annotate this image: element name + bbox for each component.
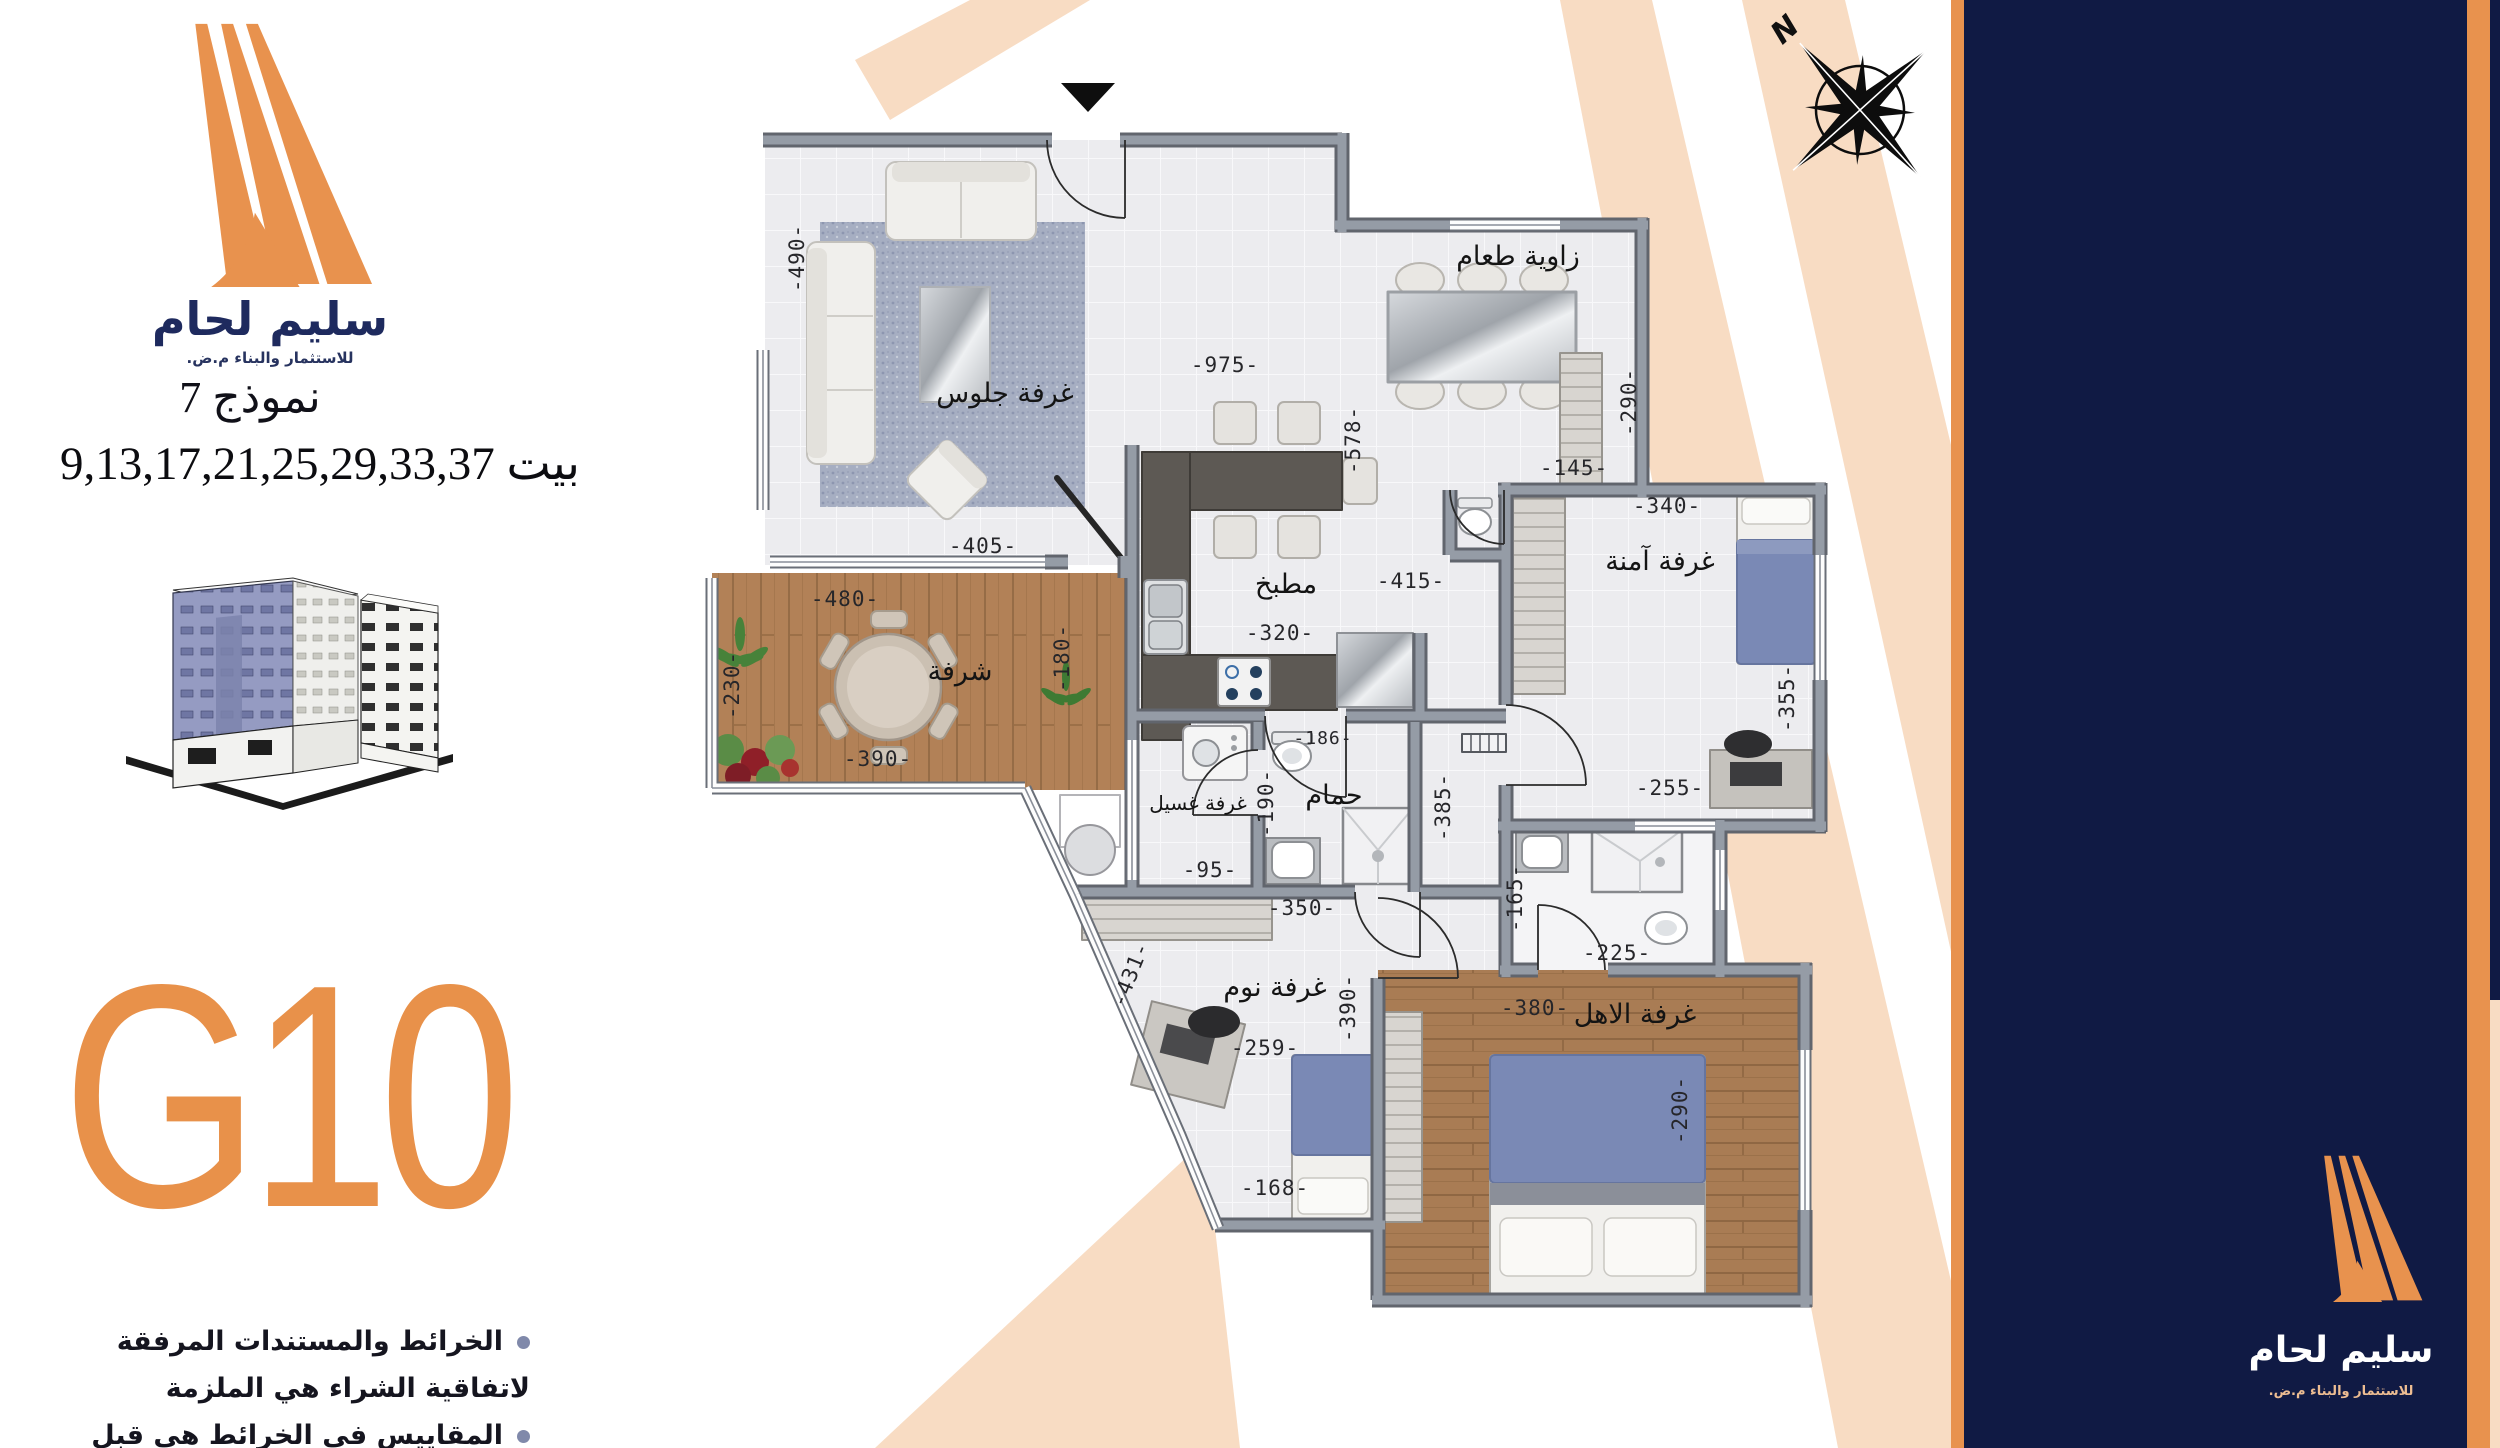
dim: -480-: [811, 587, 879, 611]
safe-bed: [1737, 494, 1815, 664]
dim: -320-: [1246, 621, 1314, 645]
dim: -290-: [1668, 1076, 1692, 1144]
dim: -165-: [1503, 864, 1527, 932]
room-label-safe: غرفة آمنة: [1605, 545, 1715, 577]
compass-north-label: N: [1765, 9, 1806, 52]
brand-name: سليم لحام: [105, 292, 435, 346]
dining-set: [1388, 263, 1576, 409]
dim: -385-: [1431, 773, 1455, 841]
terrace-column: [1060, 795, 1120, 875]
family-wardrobe: [1382, 1012, 1422, 1222]
note-text: الخرائط والمستندات المرفقة لاتفاقية الشر…: [117, 1326, 530, 1404]
building-render: [118, 558, 453, 813]
dim: -578-: [1341, 406, 1365, 474]
note-item: المقاييس في الخرائط هي قبل مرحلة القصارة: [60, 1412, 530, 1448]
dim: -145-: [1540, 456, 1608, 480]
dim: -350-: [1268, 896, 1336, 920]
dim: -168-: [1241, 1176, 1309, 1200]
bath2-shower: [1592, 830, 1682, 892]
radiator: [1462, 734, 1506, 752]
entrance-arrow-icon: [1061, 83, 1115, 112]
room-label-kitchen: مطبخ: [1255, 569, 1317, 600]
dim: -230-: [720, 651, 744, 719]
dim: -340-: [1633, 494, 1701, 518]
dim: -390-: [844, 747, 912, 771]
note-item: الخرائط والمستندات المرفقة لاتفاقية الشر…: [60, 1318, 530, 1412]
panel-brand-tagline: للاستثمار والبناء م.ض.: [2191, 1384, 2491, 1399]
bath-sink: [1266, 838, 1320, 884]
room-label-balcony: شرفة: [928, 656, 993, 687]
room-label-dining: زاوية طعام: [1456, 241, 1580, 272]
room-label-living: غرفة جلوس: [936, 378, 1074, 409]
dim: -355-: [1775, 664, 1799, 732]
dim: -180-: [1050, 624, 1074, 692]
panel-orange-stripe: [1951, 0, 1964, 1448]
floorplan: غرفة جلوس زاوية طعام مطبخ شرفة غرفة غسيل…: [620, 50, 1920, 1320]
bath2-toilet: [1645, 912, 1687, 944]
note-text: المقاييس في الخرائط هي قبل مرحلة القصارة: [91, 1420, 530, 1448]
dim: -975-: [1191, 353, 1259, 377]
shower: [1343, 808, 1413, 884]
bedroom-closet: [1082, 898, 1272, 940]
dim: -380-: [1501, 996, 1569, 1020]
stove: [1218, 658, 1270, 706]
room-label-family: غرفة الاهل: [1574, 999, 1697, 1030]
panel-peach-corner: [2490, 1000, 2500, 1448]
room-label-bedroom: غرفة نوم: [1223, 972, 1326, 1003]
kitchen-sink: [1144, 580, 1187, 654]
sofa-three-seat: [807, 242, 875, 464]
dim: -190-: [1254, 769, 1278, 837]
poster-page: سليم لحام للاستثمار والبناء م.ض. نموذج 7…: [0, 0, 2500, 1448]
wc-toilet: [1458, 498, 1492, 535]
dim: -290-: [1617, 368, 1641, 436]
side-panel: سليم لحام للاستثمار والبناء م.ض.: [1951, 0, 2500, 1448]
dim: -225-: [1583, 941, 1651, 965]
brand-tagline: للاستثمار والبناء م.ض.: [105, 349, 435, 367]
company-logo-icon: [2269, 1135, 2429, 1320]
dim: -490-: [785, 224, 809, 292]
unit-code: G10: [62, 938, 478, 1256]
panel-brand-name: سليم لحام: [2191, 1330, 2491, 1371]
room-label-bath: حمام: [1305, 780, 1362, 811]
panel-orange-stripe: [2467, 0, 2490, 1448]
dim: -415-: [1377, 569, 1445, 593]
dining-table: [1388, 292, 1576, 382]
dim: -405-: [949, 534, 1017, 558]
dim: -259-: [1231, 1036, 1299, 1060]
bedroom-chair: [1188, 1006, 1240, 1038]
dim: -186-: [1293, 728, 1352, 749]
company-logo-icon: [95, 14, 385, 292]
room-label-laundry: غرفة غسيل: [1149, 791, 1247, 815]
fridge: [1337, 633, 1413, 707]
houses-label: بيت 9,13,17,21,25,29,33,37: [55, 436, 585, 491]
dim: -390-: [1336, 974, 1360, 1042]
model-label: نموذج 7: [60, 372, 440, 423]
notes-list: الخرائط والمستندات المرفقة لاتفاقية الشر…: [60, 1318, 530, 1448]
compass-icon: N: [1765, 5, 1955, 210]
bullet-icon: [517, 1430, 530, 1443]
dim: -95-: [1183, 858, 1238, 882]
sofa-two-seat: [886, 162, 1036, 240]
safe-wardrobe: [1513, 498, 1565, 694]
bullet-icon: [517, 1336, 530, 1349]
dim: -255-: [1636, 776, 1704, 800]
